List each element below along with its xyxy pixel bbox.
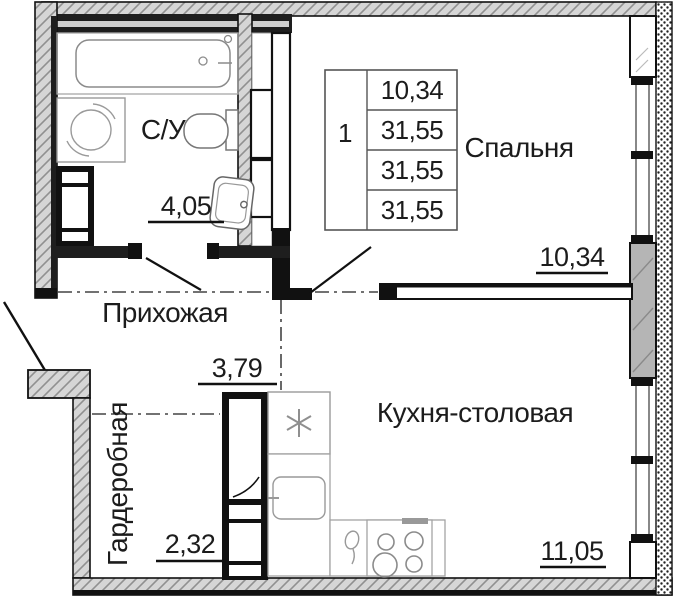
kitchen-sink-icon [273,477,325,519]
bathroom-door-jamb-left [128,243,142,259]
table-value-3: 31,55 [381,155,444,185]
kitchen-label: Кухня-столовая [377,397,573,428]
bedroom-kitchen-wall-cap [380,284,397,299]
bedroom-partition-upper [272,33,290,230]
floor-plan: 1 10,34 31,55 31,55 31,55 С/У 4,05 Спаль… [0,0,675,600]
table-value-1: 10,34 [381,75,444,105]
bathtub-icon [57,33,238,94]
pier-middle [630,243,656,378]
kitchen-counter-bottom [330,518,445,577]
bathroom-area: 4,05 [161,191,212,221]
utility-shaft-unit [56,166,94,246]
bedroom-window [631,77,653,243]
kitchen-area: 11,05 [540,536,603,566]
left-wall-corner-jog [28,370,90,398]
toilet-icon [184,110,238,150]
tall-cabinet-shaft [222,392,268,580]
flat-number: 1 [338,118,352,148]
kitchen-counter-left [268,454,330,576]
pier-bottom-right [630,542,656,578]
washing-machine-icon [57,98,125,162]
table-value-2: 31,55 [381,115,444,145]
wardrobe-area: 2,32 [165,529,216,559]
bottom-wall-edge [73,590,672,595]
info-table: 1 10,34 31,55 31,55 31,55 [325,70,457,230]
table-value-4: 31,55 [381,195,444,225]
pier-top-right [630,16,656,77]
duct-box-upper [251,90,273,158]
left-wall-inner-edge [51,16,57,290]
kitchen-window [631,378,653,542]
right-insulation-band [656,2,672,595]
bathroom-door-jamb-right [207,243,219,259]
stove-burners-icon [367,518,432,577]
entrance-jamb-top [35,288,57,298]
bedroom-label: Спальня [464,132,573,163]
right-facade [630,16,656,578]
hallway-label: Прихожая [102,297,228,328]
wardrobe-label: Гардеробная [102,402,133,566]
bathroom-door-leaf [146,258,201,290]
top-wall [42,2,656,16]
bedroom-door-threshold [283,288,312,300]
fridge [268,392,330,454]
bedroom-area: 10,34 [539,242,605,272]
bathroom-bottom-wall-right [207,246,290,258]
bathroom-label: С/У [141,114,186,145]
entrance-door-leaf [4,302,46,372]
hallway-area: 3,79 [212,353,263,383]
floor-plan-drawing: 1 10,34 31,55 31,55 31,55 С/У 4,05 Спаль… [0,0,675,600]
left-wall-lower [73,398,90,578]
bedroom-door-leaf [310,247,371,293]
